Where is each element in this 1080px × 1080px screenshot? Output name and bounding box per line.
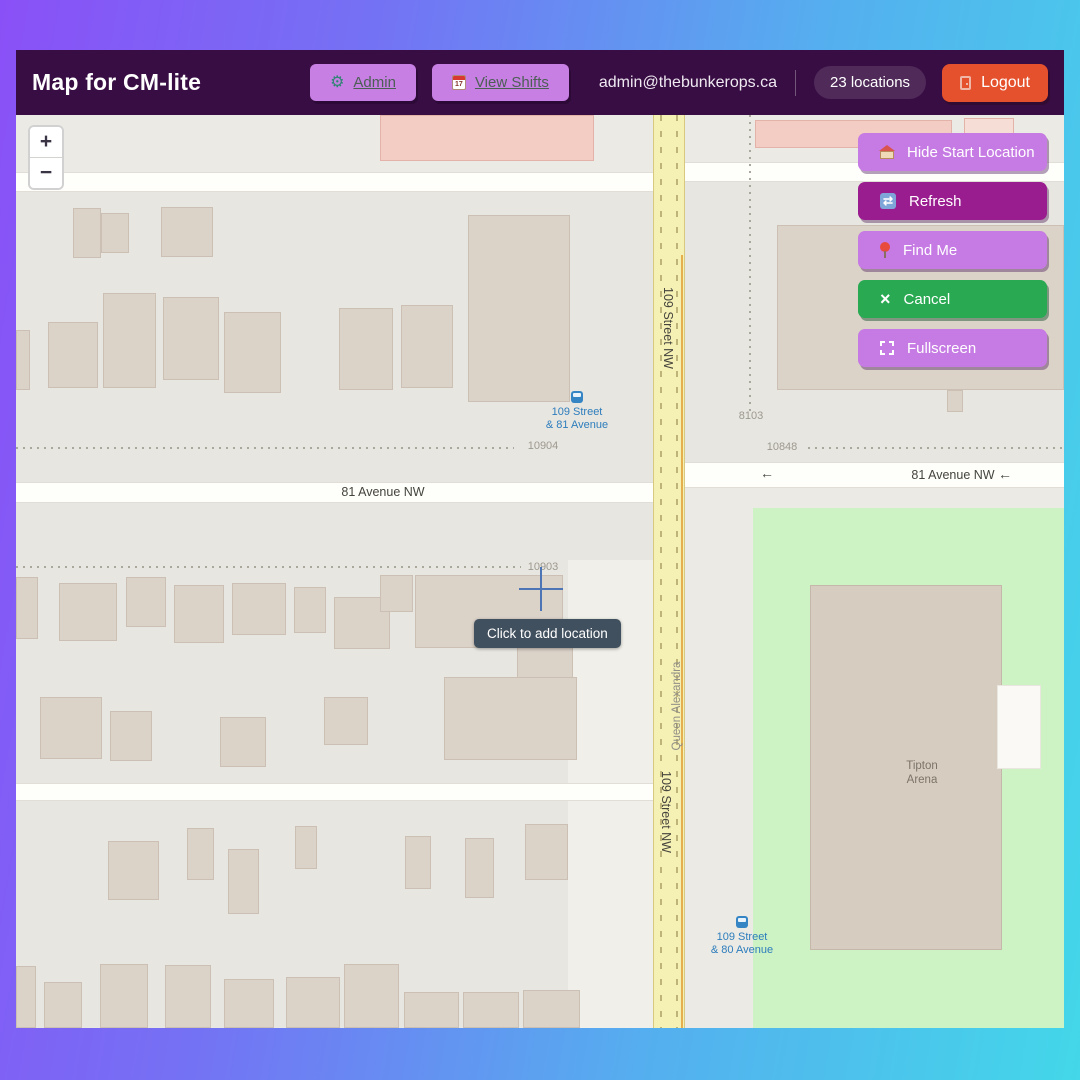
zoom-control: + − (28, 125, 64, 190)
building (232, 583, 286, 635)
fullscreen-icon (880, 341, 894, 355)
building (220, 717, 266, 767)
gear-icon: ⚙ (330, 75, 344, 91)
parcel-dotted-line (16, 566, 521, 568)
add-location-tooltip: Click to add location (474, 619, 621, 648)
oneway-arrow-icon: ← (760, 465, 774, 481)
parcel-dotted-line (16, 447, 514, 449)
park-path (997, 685, 1041, 769)
house-number-10904: 10904 (528, 440, 559, 452)
building (163, 297, 219, 380)
cancel-label: Cancel (904, 291, 951, 308)
building (525, 824, 568, 880)
find-me-label: Find Me (903, 242, 957, 259)
street-label-109-bottom: 109 Street NW (659, 771, 673, 853)
admin-label: Admin (353, 74, 396, 91)
fullscreen-label: Fullscreen (907, 340, 976, 357)
street-label-81-avenue-left: 81 Avenue NW (341, 485, 424, 499)
building (463, 992, 519, 1028)
bus-stop-label-80: 109 Street& 80 Avenue (711, 931, 773, 957)
house-number-8103: 8103 (739, 410, 763, 422)
refresh-button[interactable]: ⇄ Refresh (858, 182, 1047, 220)
house-number-10903: 10903 (528, 561, 559, 573)
bus-lane-marking (660, 115, 662, 1028)
building (286, 977, 340, 1028)
map-canvas[interactable]: TiptonArena (16, 115, 1064, 1028)
building (100, 964, 148, 1028)
building (224, 312, 281, 393)
hide-start-location-button[interactable]: Hide Start Location (858, 133, 1047, 171)
bus-stop-icon (571, 391, 583, 403)
cycle-lane-marking (681, 255, 683, 1028)
zoom-in-button[interactable]: + (30, 127, 62, 157)
building (405, 836, 431, 889)
building (59, 583, 117, 641)
cancel-button[interactable]: × Cancel (858, 280, 1047, 318)
header-bar: Map for CM-lite ⚙ Admin 17 View Shifts a… (16, 50, 1064, 115)
building (103, 293, 156, 388)
building (224, 979, 274, 1028)
building (401, 305, 453, 388)
building (444, 677, 577, 760)
building (40, 697, 102, 759)
building (344, 964, 399, 1028)
building (324, 697, 368, 745)
crosshair-cursor (540, 567, 542, 611)
bus-stop-icon (736, 916, 748, 928)
building (294, 587, 326, 633)
building (465, 838, 494, 898)
refresh-icon: ⇄ (880, 193, 896, 209)
fullscreen-button[interactable]: Fullscreen (858, 329, 1047, 367)
building (228, 849, 259, 914)
road-81-avenue-left (16, 483, 655, 502)
house-number-10848: 10848 (767, 441, 798, 453)
building (947, 390, 963, 412)
building (161, 207, 213, 257)
building (73, 208, 101, 258)
oneway-arrow-icon: ← (998, 466, 1012, 482)
building (295, 826, 317, 869)
view-shifts-button[interactable]: 17 View Shifts (432, 64, 569, 101)
boundary-dotted-line (749, 115, 751, 413)
building (108, 841, 159, 900)
building (187, 828, 214, 880)
building (16, 966, 36, 1028)
house-icon (880, 151, 894, 159)
page-title: Map for CM-lite (32, 69, 201, 96)
neighbourhood-label: Queen Alexandra (671, 662, 683, 751)
locations-count-badge: 23 locations (814, 66, 926, 99)
find-me-button[interactable]: Find Me (858, 231, 1047, 269)
building (339, 308, 393, 390)
app-window: Map for CM-lite ⚙ Admin 17 View Shifts a… (16, 50, 1064, 1028)
arena-label: TiptonArena (906, 759, 938, 787)
building (165, 965, 211, 1028)
building (523, 990, 580, 1028)
building (468, 215, 570, 402)
bus-lane-marking (676, 115, 678, 1028)
logout-label: Logout (981, 74, 1030, 92)
building (48, 322, 98, 388)
street-label-81-avenue-right: 81 Avenue NW (911, 468, 994, 482)
building (404, 992, 459, 1028)
admin-button[interactable]: ⚙ Admin (310, 64, 416, 101)
user-email: admin@thebunkerops.ca (599, 74, 777, 92)
view-shifts-label: View Shifts (475, 74, 549, 91)
building (380, 575, 413, 612)
street-label-109-top: 109 Street NW (661, 287, 675, 369)
calendar-icon: 17 (452, 75, 466, 90)
road-82-avenue-left (16, 173, 655, 191)
building (101, 213, 129, 253)
road-80-avenue (16, 784, 655, 800)
door-icon (960, 76, 971, 90)
logout-button[interactable]: Logout (942, 64, 1048, 102)
building (126, 577, 166, 627)
building (44, 982, 82, 1028)
building (16, 330, 30, 390)
building (174, 585, 224, 643)
parcel-dotted-line (808, 447, 1064, 449)
building (16, 577, 38, 639)
close-icon: × (880, 290, 891, 308)
building (380, 115, 594, 161)
zoom-out-button[interactable]: − (30, 157, 62, 188)
header-divider (795, 70, 796, 96)
bus-stop-label-81: 109 Street& 81 Avenue (546, 406, 608, 432)
pin-icon (880, 242, 890, 252)
hide-start-location-label: Hide Start Location (907, 144, 1035, 161)
refresh-label: Refresh (909, 193, 962, 210)
building (110, 711, 152, 761)
